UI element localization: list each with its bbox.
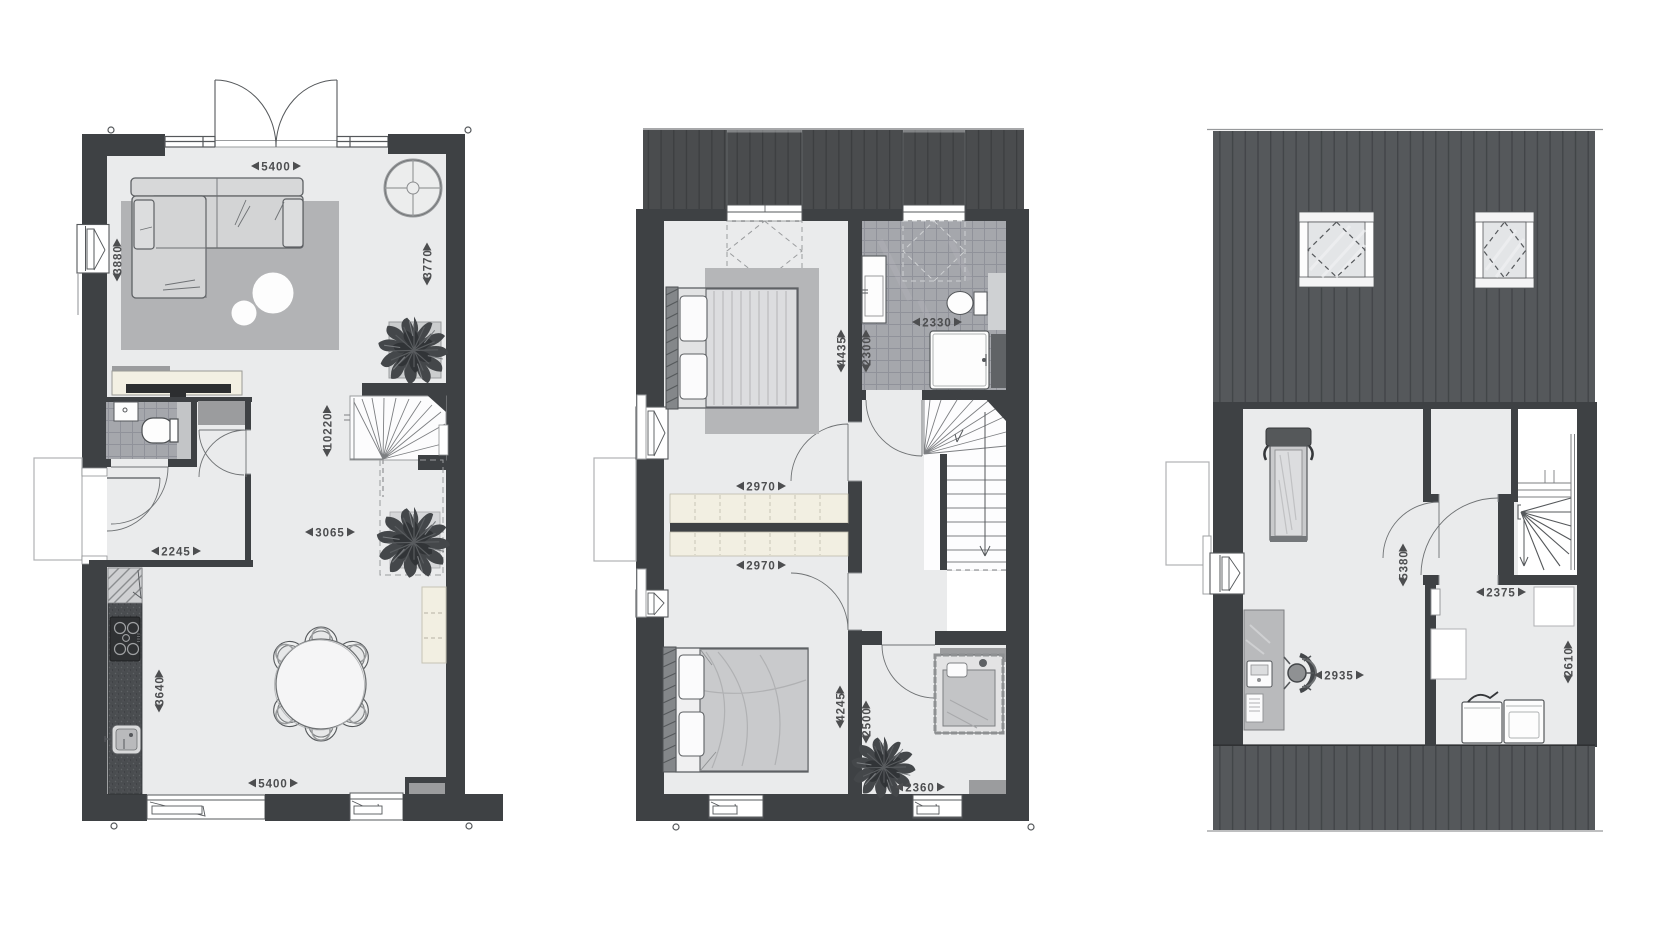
svg-text:3065: 3065 [315, 528, 345, 540]
svg-text:2970: 2970 [746, 482, 776, 494]
svg-text:2360: 2360 [905, 783, 935, 795]
svg-text:2375: 2375 [1486, 588, 1516, 600]
svg-text:2330: 2330 [922, 318, 952, 330]
svg-text:3640: 3640 [155, 676, 167, 706]
svg-text:2500: 2500 [862, 707, 874, 737]
svg-text:3880: 3880 [113, 245, 125, 275]
svg-text:3770: 3770 [423, 249, 435, 279]
svg-text:4435: 4435 [837, 336, 849, 366]
svg-text:2245: 2245 [161, 547, 191, 559]
svg-text:2610: 2610 [1564, 647, 1576, 677]
svg-text:10220: 10220 [323, 413, 335, 450]
svg-text:2970: 2970 [746, 561, 776, 573]
svg-text:5400: 5400 [261, 162, 291, 174]
svg-text:4245: 4245 [836, 692, 848, 722]
svg-text:2300: 2300 [862, 336, 874, 366]
svg-text:5400: 5400 [258, 779, 288, 791]
svg-text:2935: 2935 [1324, 671, 1354, 683]
svg-text:5380: 5380 [1399, 550, 1411, 580]
